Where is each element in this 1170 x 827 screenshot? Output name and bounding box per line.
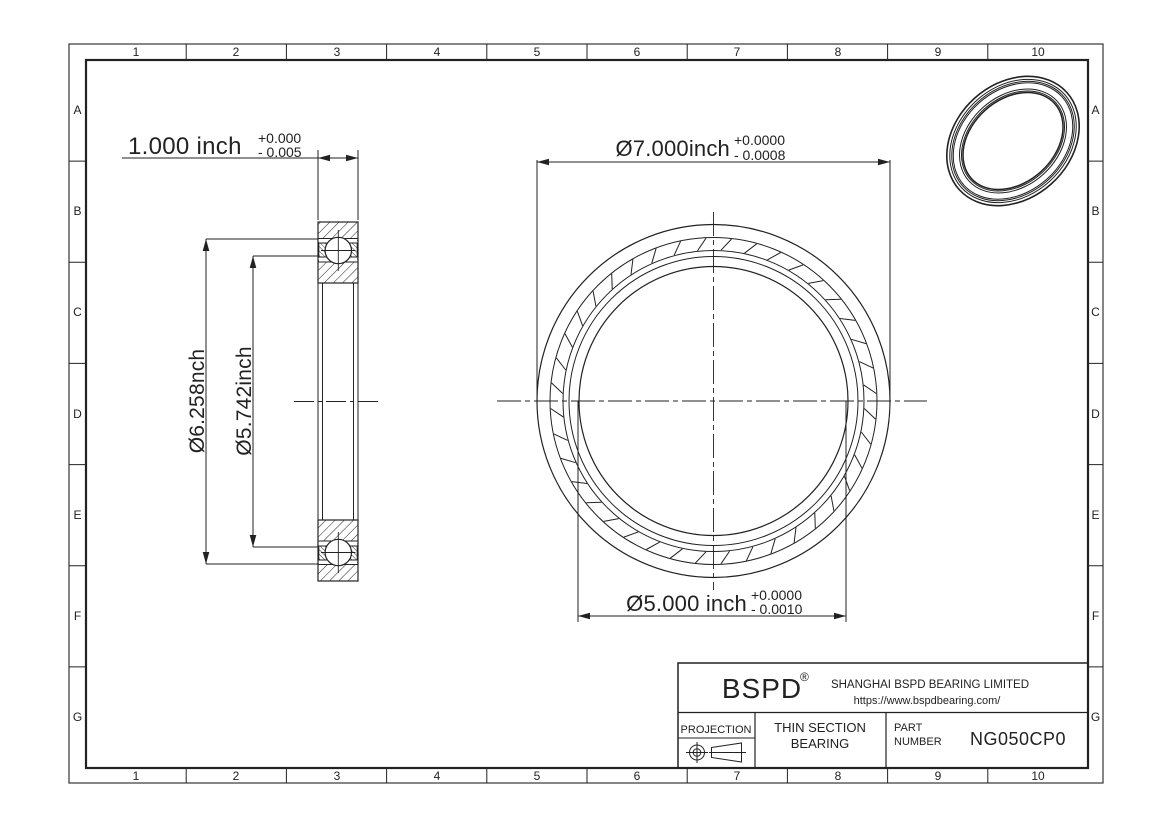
grid-column-label: 3 [334, 45, 341, 59]
cage-tick [556, 358, 565, 370]
grid-row-label: D [73, 407, 82, 421]
width-dimension-label: 1.000 inch [128, 133, 242, 160]
section-view: 1.000 inch +0.000 - 0.005 [122, 130, 380, 581]
grid-row-label: B [73, 204, 81, 218]
grid-column-label: 2 [233, 45, 240, 59]
outer-diameter-tolerance-plus: +0.0000 [734, 132, 785, 148]
cage-tick [794, 527, 796, 542]
cage-tick [652, 249, 656, 264]
grid-column-label: 9 [935, 45, 942, 59]
cage-tick [565, 334, 572, 347]
cage-tick [593, 291, 596, 306]
grid-column-label: 1 [133, 45, 140, 59]
cage-tick [864, 409, 875, 420]
grid-row-label: E [1091, 508, 1099, 522]
cage-tick [855, 455, 862, 468]
cage-tick [697, 238, 706, 251]
cage-tick [612, 274, 613, 289]
cage-tick [586, 502, 601, 503]
drawing-sheet: 1 2 3 4 5 6 7 8 9 10 1 2 3 4 5 6 7 8 9 1… [0, 0, 1170, 827]
grid-column-label: 10 [1031, 45, 1045, 59]
projection-symbol-icon [686, 742, 746, 763]
cage-tick [851, 339, 866, 343]
grid-column-label: 5 [534, 45, 541, 59]
part-number-label-line2: NUMBER [894, 736, 942, 748]
cage-tick [808, 281, 823, 284]
cage-tick [624, 532, 638, 537]
dimension-arrow [203, 239, 210, 251]
cage-tick [721, 239, 732, 250]
grid-row-label: D [1091, 407, 1100, 421]
grid-row-label: F [74, 609, 81, 623]
cage-tick [604, 519, 619, 522]
grid-row-label: B [1091, 204, 1099, 218]
grid-column-label: 2 [233, 769, 240, 783]
width-dimension [122, 150, 358, 220]
cage-tick [746, 547, 753, 561]
product-name-line1: THIN SECTION [774, 720, 866, 735]
grid-column-label: 7 [734, 769, 741, 783]
grid-column-label: 8 [835, 769, 842, 783]
cage-tick [826, 299, 841, 300]
outer-diameter-tolerance-minus: - 0.0008 [734, 147, 786, 163]
dimension-arrow [346, 155, 358, 162]
grid-column-label: 8 [835, 45, 842, 59]
grid-row-labels-right: A B C D E F G [1091, 103, 1100, 724]
cage-tick [815, 513, 816, 528]
grid-row-label: C [73, 305, 82, 319]
grid-column-label: 5 [534, 769, 541, 783]
front-view: Ø7.000inch +0.0000 - 0.0008 Ø5.000 inch … [497, 132, 927, 622]
dimension-arrow [250, 256, 257, 268]
part-number-value: NG050CP0 [970, 729, 1066, 749]
bore-diameter-label: Ø5.000 inch [626, 591, 747, 616]
outer-diameter-label: Ø7.000inch [615, 136, 730, 161]
cage-tick [695, 552, 706, 563]
cage-tick [789, 265, 803, 270]
cage-tick [551, 409, 564, 418]
grid-column-label: 6 [634, 769, 641, 783]
cage-tick [674, 241, 681, 255]
cage-tick [572, 482, 587, 484]
grid-column-label: 7 [734, 45, 741, 59]
grid-column-label: 9 [935, 769, 942, 783]
grid-row-label: G [73, 710, 82, 724]
cage-tick [864, 385, 877, 394]
grid-row-label: A [1091, 103, 1099, 117]
cage-tick [831, 496, 834, 511]
grid-column-labels-top: 1 2 3 4 5 6 7 8 9 10 [133, 45, 1045, 59]
title-block: BSPD ® SHANGHAI BSPD BEARING LIMITED htt… [678, 663, 1088, 768]
registered-trademark-icon: ® [800, 670, 809, 684]
section-bottom-block [318, 520, 358, 581]
cage-tick [631, 259, 633, 274]
grid-row-label: G [1091, 710, 1100, 724]
cage-tick [577, 311, 582, 325]
width-tolerance-minus: - 0.005 [258, 144, 302, 160]
cage-tick [670, 549, 682, 558]
dimension-arrow [203, 552, 210, 564]
dimension-arrow [318, 155, 330, 162]
cage-tick [552, 383, 563, 394]
dimension-arrow [250, 535, 257, 547]
bore-diameter-tolerance-minus: - 0.0010 [751, 601, 803, 617]
grid-column-label: 6 [634, 45, 641, 59]
company-website: https://www.bspdbearing.com/ [854, 695, 1002, 707]
grid-column-labels-bottom: 1 2 3 4 5 6 7 8 9 10 [133, 769, 1045, 783]
dimension-arrow [878, 159, 890, 166]
projection-label: PROJECTION [681, 724, 752, 736]
section-top-block [318, 222, 358, 283]
grid-column-label: 10 [1031, 769, 1045, 783]
bore-diameter-dimension [578, 401, 846, 622]
grid-row-labels-left: A B C D E F G [73, 103, 82, 724]
grid-row-label: F [1092, 609, 1099, 623]
grid-row-label: A [73, 103, 81, 117]
product-name-line2: BEARING [791, 736, 850, 751]
grid-column-label: 1 [133, 769, 140, 783]
part-number-label-line1: PART [894, 722, 923, 734]
cage-tick [767, 253, 780, 260]
grid-row-label: C [1091, 305, 1100, 319]
brand-logo: BSPD [722, 673, 802, 704]
inner-race-dimension-label: Ø5.742inch [233, 346, 256, 455]
dimension-arrow [578, 613, 590, 620]
cage-tick [745, 244, 757, 253]
cage-tick [840, 319, 855, 321]
cage-tick [554, 434, 568, 441]
cage-tick [561, 458, 576, 462]
company-name: SHANGHAI BSPD BEARING LIMITED [831, 679, 1029, 691]
outer-race-dimension-label: Ø6.258nch [186, 349, 209, 454]
isometric-view [921, 50, 1106, 232]
cage-tick [859, 362, 873, 369]
cage-tick [646, 542, 659, 549]
dimension-arrow [834, 613, 846, 620]
cage-tick [771, 539, 775, 554]
cage-tick [844, 476, 849, 490]
grid-column-label: 3 [334, 769, 341, 783]
grid-column-label: 4 [434, 45, 441, 59]
drawing-canvas: 1 2 3 4 5 6 7 8 9 10 1 2 3 4 5 6 7 8 9 1… [0, 0, 1170, 827]
grid-column-label: 4 [434, 769, 441, 783]
cage-tick [861, 432, 870, 444]
dimension-arrow [537, 159, 549, 166]
grid-row-label: E [73, 508, 81, 522]
cage-tick [721, 551, 730, 564]
